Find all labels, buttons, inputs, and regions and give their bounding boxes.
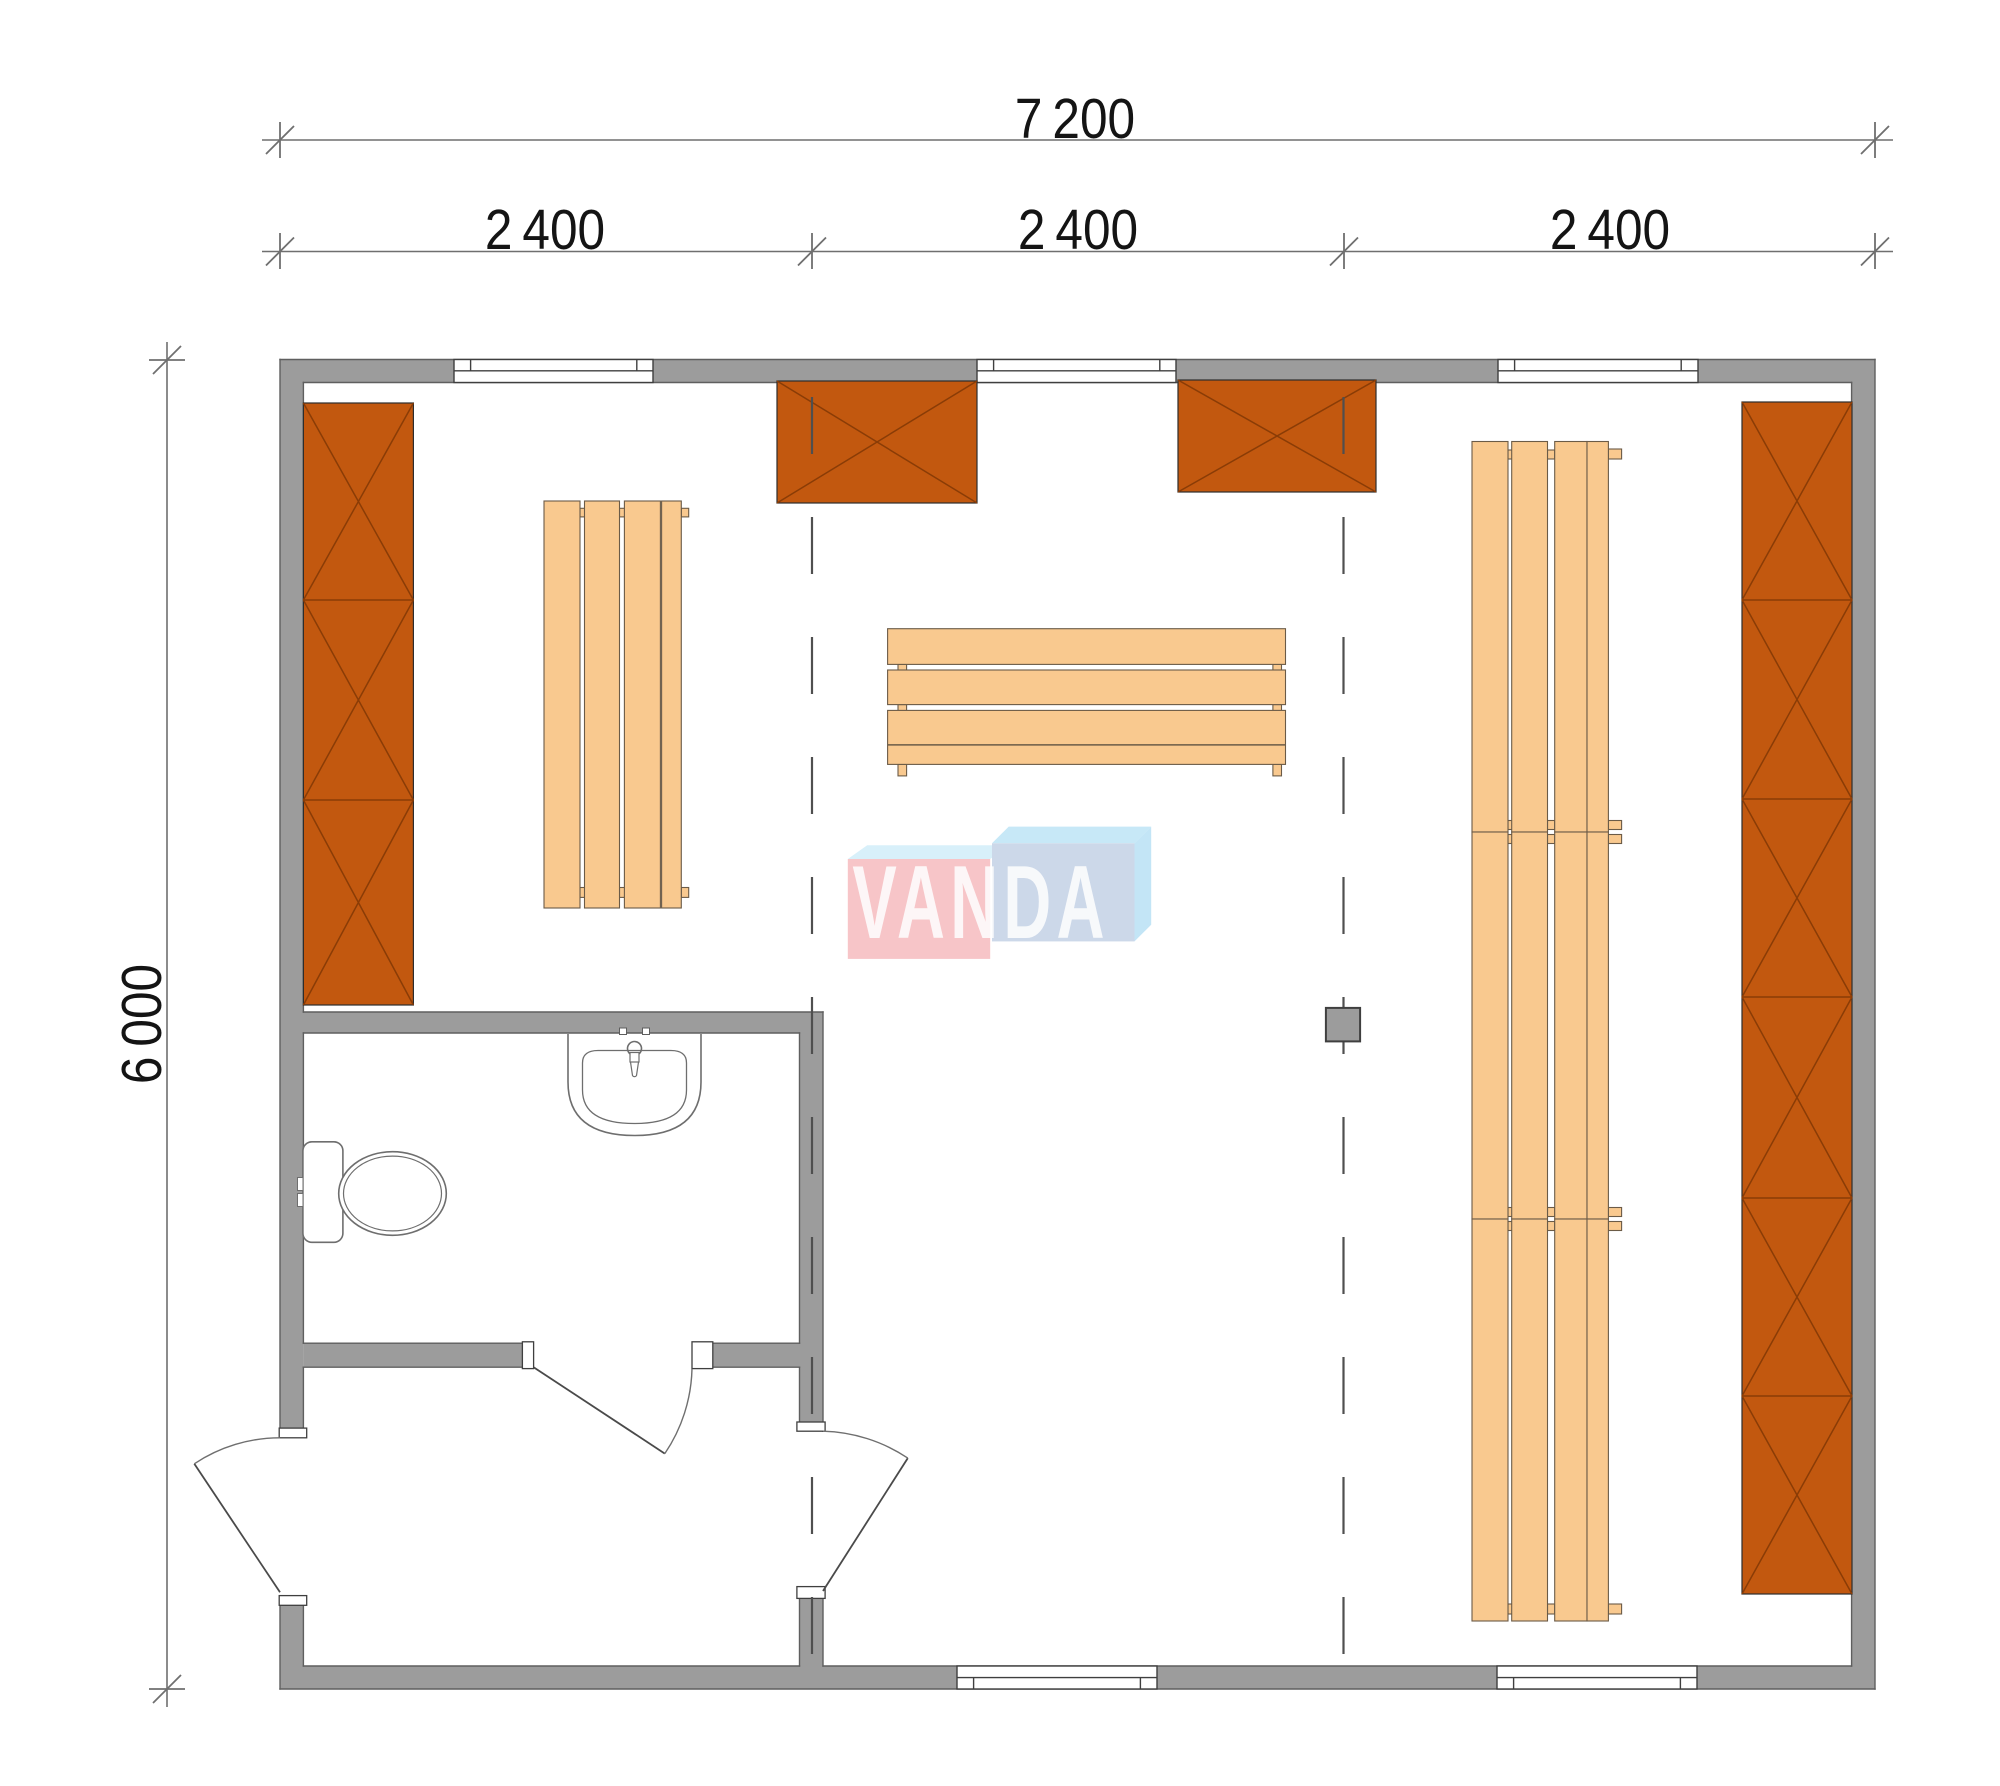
svg-text:2 400: 2 400 bbox=[485, 199, 605, 262]
svg-text:2 400: 2 400 bbox=[1018, 199, 1138, 262]
svg-text:VANDA: VANDA bbox=[852, 844, 1109, 961]
svg-text:6 000: 6 000 bbox=[111, 964, 174, 1084]
svg-text:2 400: 2 400 bbox=[1550, 199, 1670, 262]
svg-text:7 200: 7 200 bbox=[1015, 88, 1135, 151]
